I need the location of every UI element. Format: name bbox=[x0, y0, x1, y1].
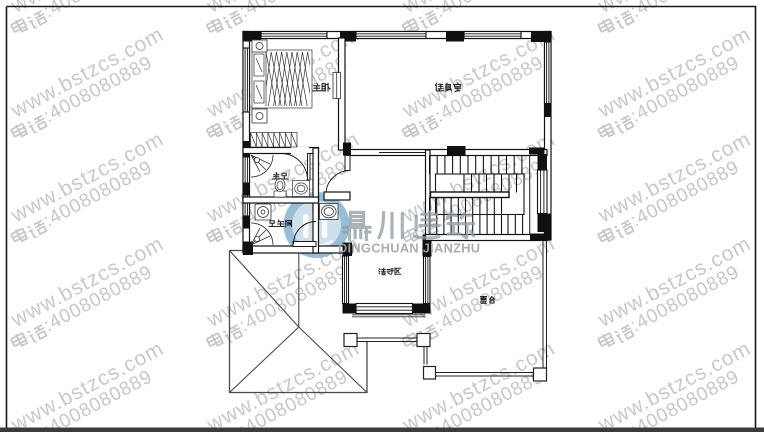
svg-text:DINGCHUAN JIANZHU: DINGCHUAN JIANZHU bbox=[338, 241, 480, 256]
